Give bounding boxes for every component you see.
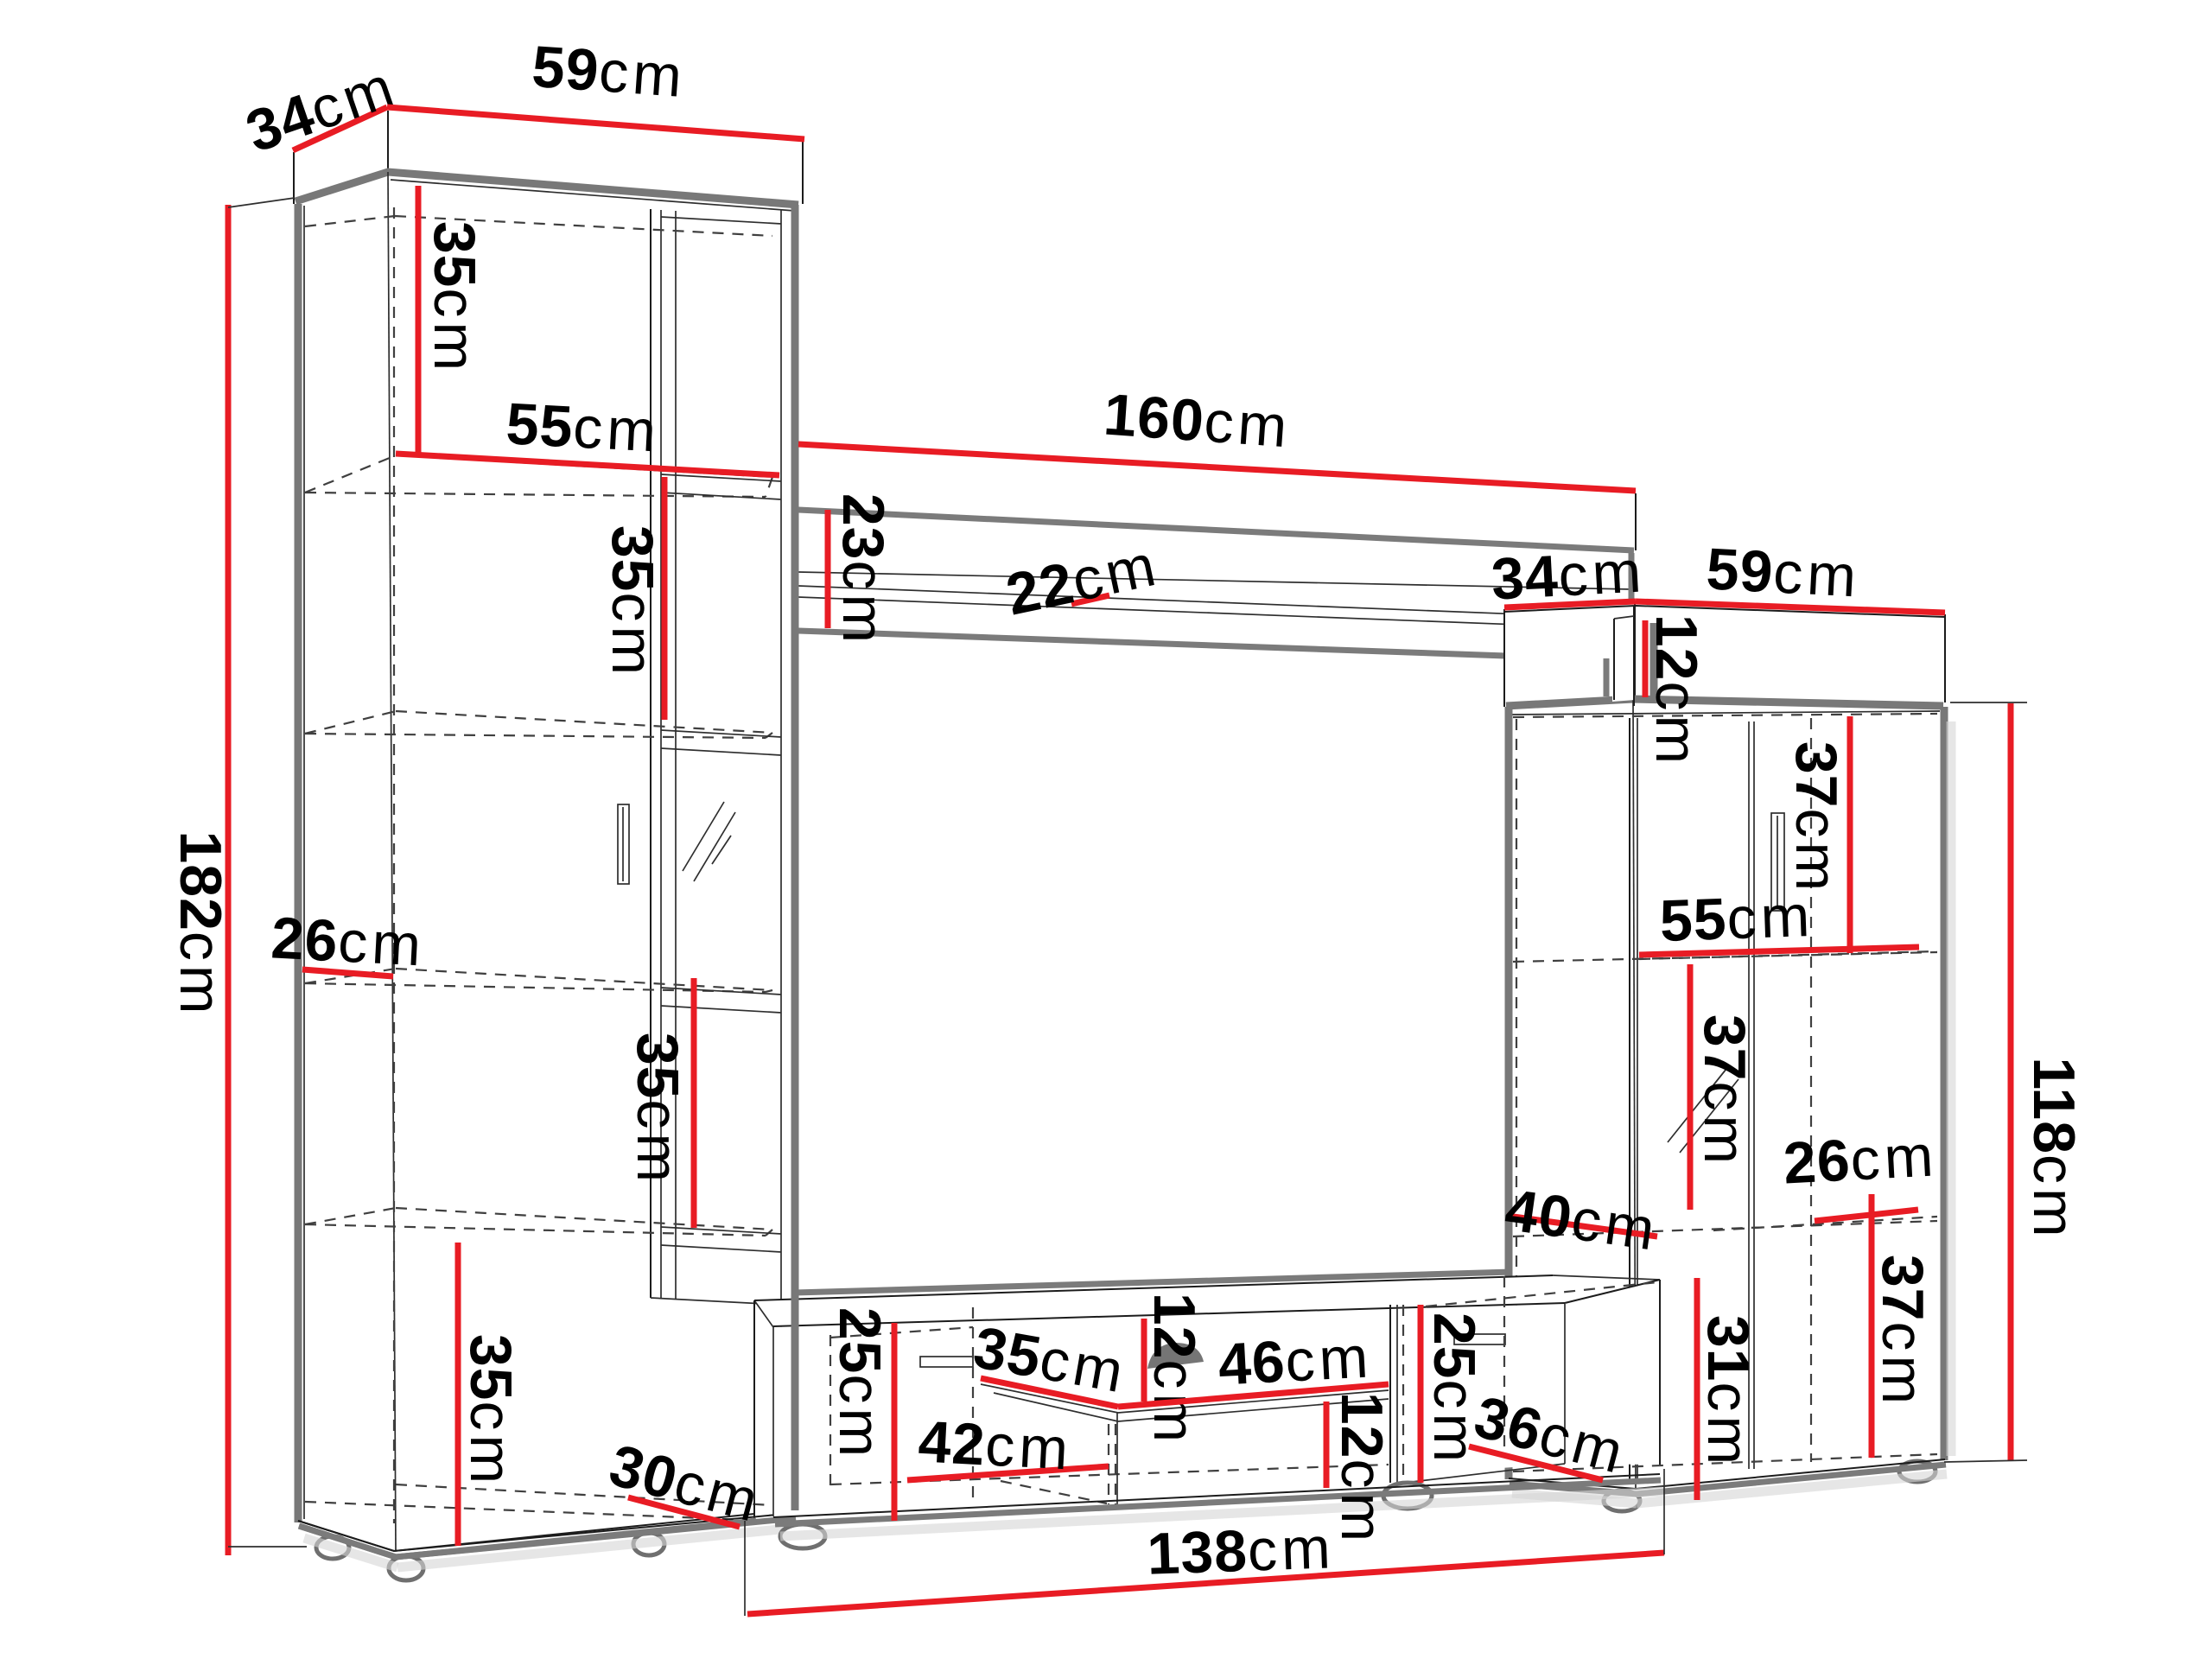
svg-text:37cm: 37cm	[1692, 1014, 1758, 1168]
svg-text:118cm: 118cm	[2021, 1057, 2087, 1241]
svg-text:34cm: 34cm	[1490, 538, 1647, 612]
svg-text:35cm: 35cm	[422, 221, 487, 375]
svg-text:55cm: 55cm	[505, 391, 662, 464]
svg-text:12cm: 12cm	[1329, 1392, 1395, 1546]
svg-text:35cm: 35cm	[458, 1334, 524, 1488]
svg-text:160cm: 160cm	[1102, 382, 1294, 461]
svg-text:35cm: 35cm	[600, 525, 665, 679]
svg-text:31cm: 31cm	[1695, 1315, 1761, 1469]
svg-text:59cm: 59cm	[530, 34, 688, 110]
svg-text:23cm: 23cm	[830, 493, 896, 647]
svg-text:55cm: 55cm	[1659, 883, 1815, 954]
svg-text:42cm: 42cm	[917, 1408, 1074, 1482]
svg-text:26cm: 26cm	[1782, 1122, 1939, 1196]
svg-text:138cm: 138cm	[1146, 1515, 1336, 1587]
svg-text:12cm: 12cm	[1643, 614, 1709, 768]
svg-text:182cm: 182cm	[168, 830, 233, 1018]
svg-text:35cm: 35cm	[625, 1033, 690, 1186]
svg-text:26cm: 26cm	[270, 905, 427, 978]
svg-text:25cm: 25cm	[827, 1307, 893, 1461]
svg-text:12cm: 12cm	[1141, 1293, 1207, 1446]
svg-text:46cm: 46cm	[1217, 1324, 1374, 1397]
svg-text:37cm: 37cm	[1870, 1255, 1935, 1408]
svg-text:59cm: 59cm	[1705, 536, 1862, 609]
svg-text:37cm: 37cm	[1783, 741, 1849, 895]
